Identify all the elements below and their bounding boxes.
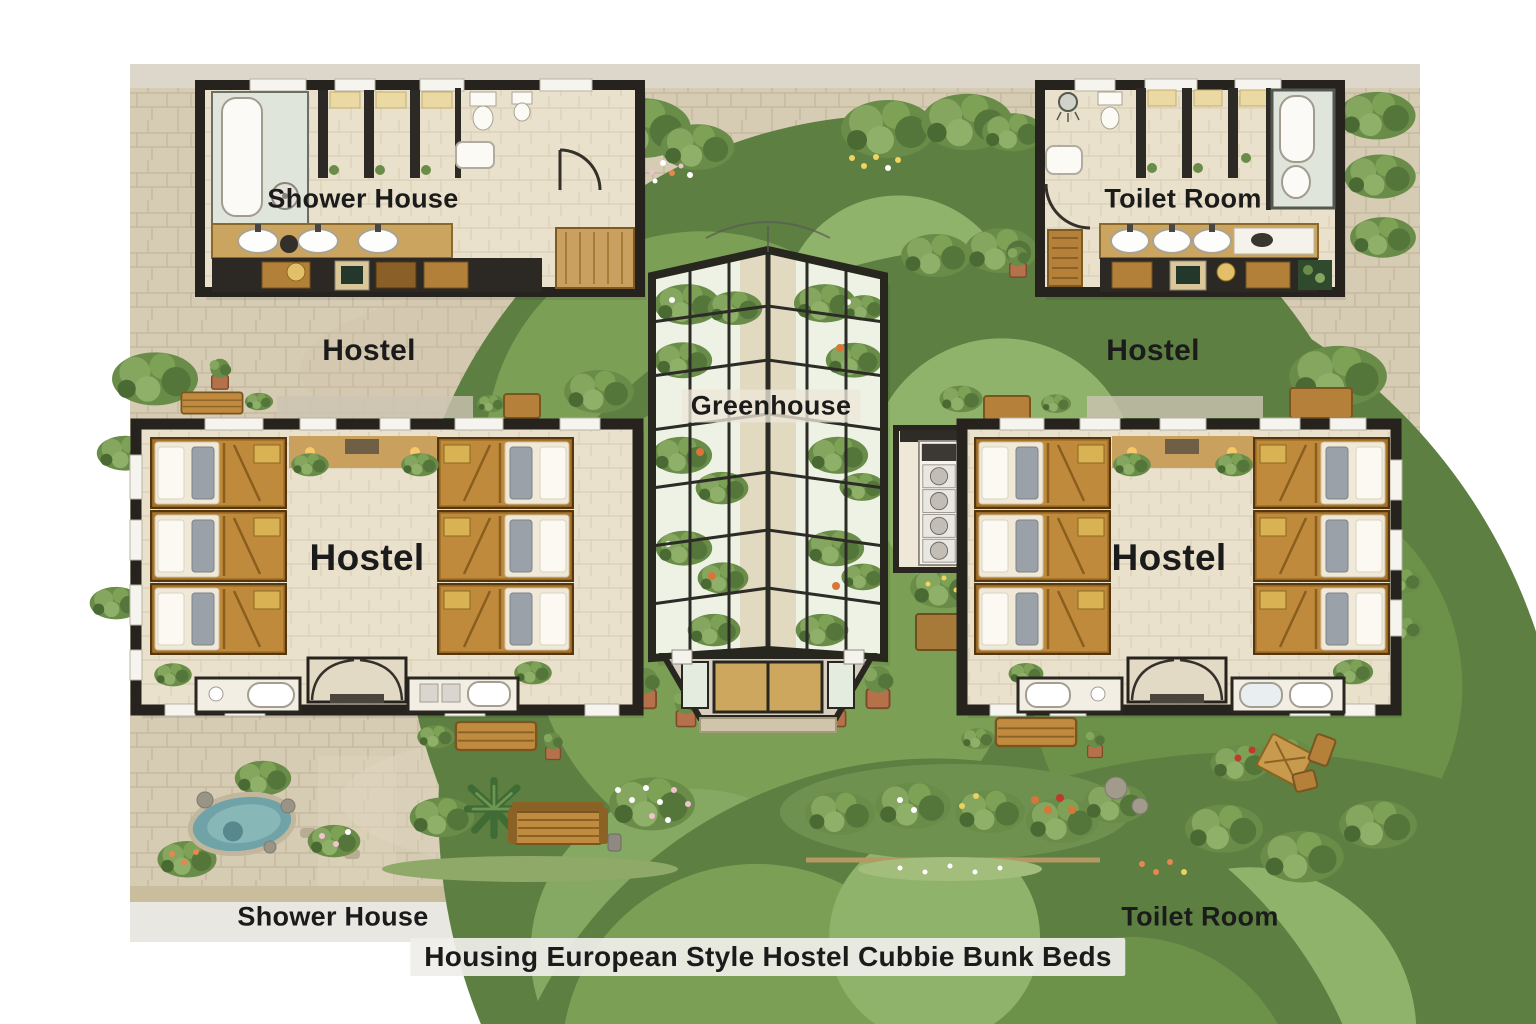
greenhouse-structure [652, 222, 890, 732]
round-mirror [287, 263, 305, 281]
bush [1041, 394, 1071, 413]
doormat [1165, 439, 1199, 454]
bush [982, 113, 1044, 151]
double-door [1128, 658, 1226, 703]
sink-counter [212, 224, 452, 258]
bush [661, 124, 735, 170]
bush [805, 792, 875, 835]
toilet-room-footer-label: Toilet Room [1121, 902, 1278, 933]
sink [1091, 687, 1105, 701]
bush [841, 100, 935, 158]
display-panel [1176, 266, 1200, 284]
bunk-bed [1254, 511, 1389, 581]
indoor-plant [1113, 453, 1151, 476]
bunk-bed [1254, 584, 1389, 654]
indoor-plant [514, 661, 552, 684]
potted-plant [1086, 730, 1105, 757]
bunk-bed [438, 438, 573, 508]
bunk-bed [151, 584, 286, 654]
bathtub [248, 683, 294, 707]
stool [280, 235, 298, 253]
bathroom-right [408, 678, 518, 712]
counter-top [1234, 228, 1314, 254]
site-plan-art [0, 0, 1536, 1024]
bunk-bed [975, 584, 1110, 654]
hostel-room-left-label: Hostel [310, 537, 425, 579]
entry-apron [277, 396, 473, 418]
basin [1282, 166, 1310, 198]
entry-apron [1087, 396, 1263, 418]
potted-plant [544, 732, 563, 759]
park-bench [508, 802, 608, 844]
planter-box [1290, 388, 1352, 418]
bathroom-right [1232, 678, 1344, 712]
bathtub [1290, 683, 1332, 707]
bush [955, 790, 1025, 833]
hostel-room-right-label: Hostel [1112, 537, 1227, 579]
potted-plant [1008, 247, 1029, 277]
flower-bush [609, 777, 695, 830]
bush [308, 825, 361, 857]
bush [961, 728, 995, 749]
cabinet-planter [1298, 260, 1332, 290]
bush [410, 797, 474, 837]
entry-pot [864, 666, 894, 708]
planter-box [984, 396, 1030, 420]
indoor-plant [401, 453, 439, 476]
planter-bush [901, 234, 971, 277]
bench [181, 392, 242, 413]
hedge [1344, 154, 1415, 198]
bathtub [222, 98, 262, 216]
bush [1339, 801, 1417, 849]
page-caption: Housing European Style Hostel Cubbie Bun… [410, 938, 1125, 976]
bathtub [1280, 96, 1314, 162]
bunk-bed [975, 511, 1110, 581]
potted-plant [210, 359, 231, 389]
shower-house-label: Shower House [267, 184, 458, 215]
indoor-plant [291, 453, 329, 476]
washer-stack-icon [919, 441, 959, 565]
bathtub [468, 682, 510, 706]
bunk-bed [438, 511, 573, 581]
sink [420, 684, 438, 702]
bathtub [1240, 683, 1282, 707]
bush [245, 393, 273, 410]
shower-house-footer-label: Shower House [237, 902, 428, 933]
bunk-bed [438, 584, 573, 654]
cabinet-strip [1100, 258, 1332, 292]
sink [442, 684, 460, 702]
kettle [1251, 233, 1273, 247]
greenhouse-label: Greenhouse [682, 390, 861, 423]
bush [875, 782, 950, 828]
bunk-bed [975, 438, 1110, 508]
bench [996, 718, 1076, 746]
bush [417, 725, 455, 748]
bench [456, 722, 536, 750]
double-door [308, 658, 406, 703]
hedge [1338, 92, 1415, 140]
bunk-bed [151, 511, 286, 581]
laundry-right [896, 428, 966, 570]
bush [1260, 831, 1343, 882]
watering-can [608, 834, 621, 851]
display-panel [341, 266, 363, 284]
side-table [504, 394, 540, 418]
windows [250, 79, 592, 91]
sconce [844, 650, 864, 664]
indoor-plant [154, 663, 192, 686]
bunk-bed [151, 438, 286, 508]
doormat [345, 439, 379, 454]
sink [209, 687, 223, 701]
bathroom-left [196, 678, 300, 712]
bush [235, 761, 291, 796]
changing-bench [1046, 146, 1082, 174]
sink-counter [1100, 224, 1318, 258]
changing-bench [456, 142, 494, 168]
windows [1075, 79, 1281, 91]
bathroom-left [1018, 678, 1122, 712]
entrance-step [700, 718, 836, 732]
bush [1185, 805, 1263, 853]
low-hedge [382, 856, 678, 882]
floor-plan-illustration: Shower House Toilet Room Hostel Hostel G… [0, 0, 1536, 1024]
flower-strip [858, 857, 1042, 881]
partition-wall [1266, 88, 1271, 210]
indoor-plant [1215, 453, 1253, 476]
cabinet-strip [212, 258, 542, 292]
round-mirror [1217, 263, 1235, 281]
toilet-room-label: Toilet Room [1104, 184, 1261, 215]
courtyard-right-label: Hostel [1106, 334, 1200, 368]
courtyard-left-label: Hostel [322, 334, 416, 368]
bunk-bed [1254, 438, 1389, 508]
bush [477, 395, 505, 412]
sconce [672, 650, 692, 664]
bush [939, 386, 982, 413]
bush [564, 370, 634, 413]
glass-shower-suite [1272, 90, 1334, 208]
hedge [1350, 217, 1416, 258]
bathtub [1026, 683, 1070, 707]
